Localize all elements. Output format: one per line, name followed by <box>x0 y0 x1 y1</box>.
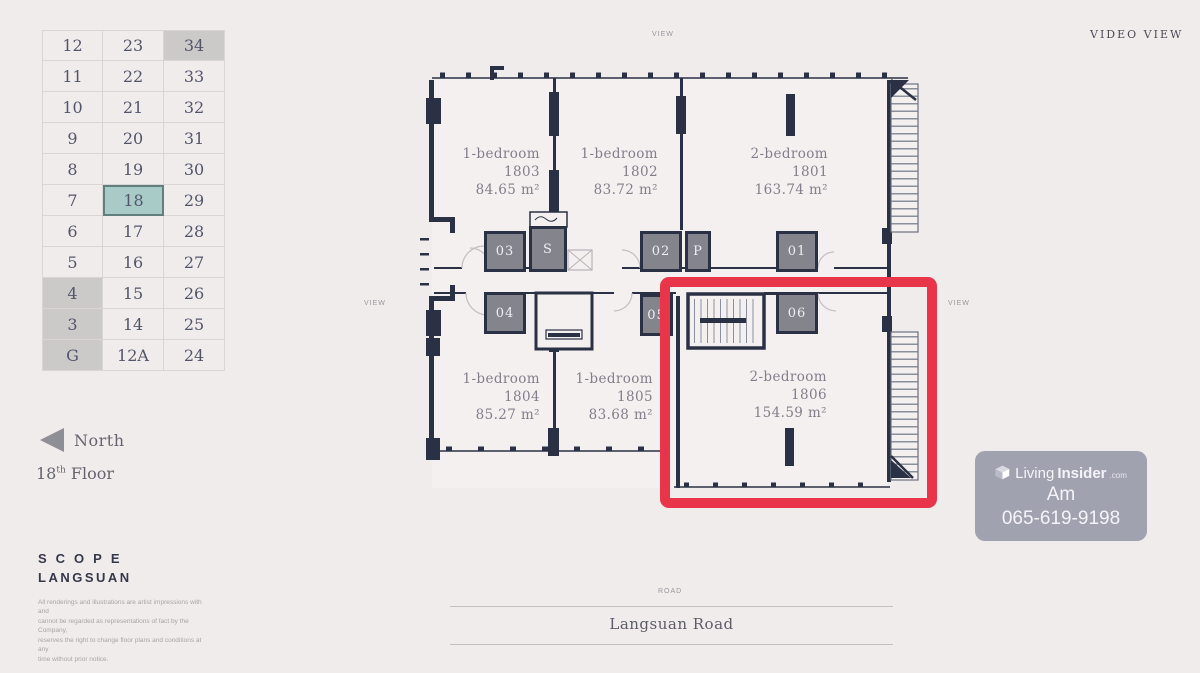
unit-1805-area: 83.68 m² <box>553 406 653 424</box>
unit-1804-number: 1804 <box>440 388 540 406</box>
watermark-tld: .com <box>1110 471 1127 480</box>
unit-1804-area: 85.27 m² <box>440 406 540 424</box>
unit-1803-number: 1803 <box>440 163 540 181</box>
unit-label-1805: 1-bedroom180583.68 m² <box>553 370 653 424</box>
road-line-bottom <box>450 644 893 645</box>
watermark-agent-name: Am <box>1047 484 1076 506</box>
core-box-02: 02 <box>640 231 682 272</box>
road-name: Langsuan Road <box>450 615 893 633</box>
core-box-S: S <box>529 226 567 272</box>
unit-1805-type: 1-bedroom <box>553 370 653 388</box>
floor-plan-page: 1223341122331021329203181930718296172851… <box>0 0 1200 673</box>
unit-label-1801: 2-bedroom1801163.74 m² <box>728 145 828 199</box>
unit-1802-number: 1802 <box>558 163 658 181</box>
core-box-04: 04 <box>484 292 526 334</box>
unit-1805-number: 1805 <box>553 388 653 406</box>
watermark-insider: Insider <box>1057 465 1106 482</box>
watermark-living: Living <box>1015 465 1054 482</box>
watermark-logo: LivingInsider.com <box>995 463 1127 482</box>
unit-1802-type: 1-bedroom <box>558 145 658 163</box>
unit-1804-type: 1-bedroom <box>440 370 540 388</box>
unit-1801-type: 2-bedroom <box>728 145 828 163</box>
unit-1801-number: 1801 <box>728 163 828 181</box>
road-line-top <box>450 606 893 607</box>
house-icon <box>995 465 1010 480</box>
unit-label-1804: 1-bedroom180485.27 m² <box>440 370 540 424</box>
watermark-phone: 065-619-9198 <box>1002 508 1120 530</box>
unit-label-1803: 1-bedroom180384.65 m² <box>440 145 540 199</box>
floor-plan-drawing <box>0 0 1200 673</box>
unit-1803-area: 84.65 m² <box>440 181 540 199</box>
unit-label-1802: 1-bedroom180283.72 m² <box>558 145 658 199</box>
unit-1801-area: 163.74 m² <box>728 181 828 199</box>
core-box-03: 03 <box>484 231 526 272</box>
core-box-01: 01 <box>776 231 818 272</box>
core-box-P: P <box>685 231 711 272</box>
unit-1802-area: 83.72 m² <box>558 181 658 199</box>
watermark-badge: LivingInsider.com Am 065-619-9198 <box>975 451 1147 541</box>
unit-1803-type: 1-bedroom <box>440 145 540 163</box>
highlight-unit-1806 <box>660 277 937 508</box>
